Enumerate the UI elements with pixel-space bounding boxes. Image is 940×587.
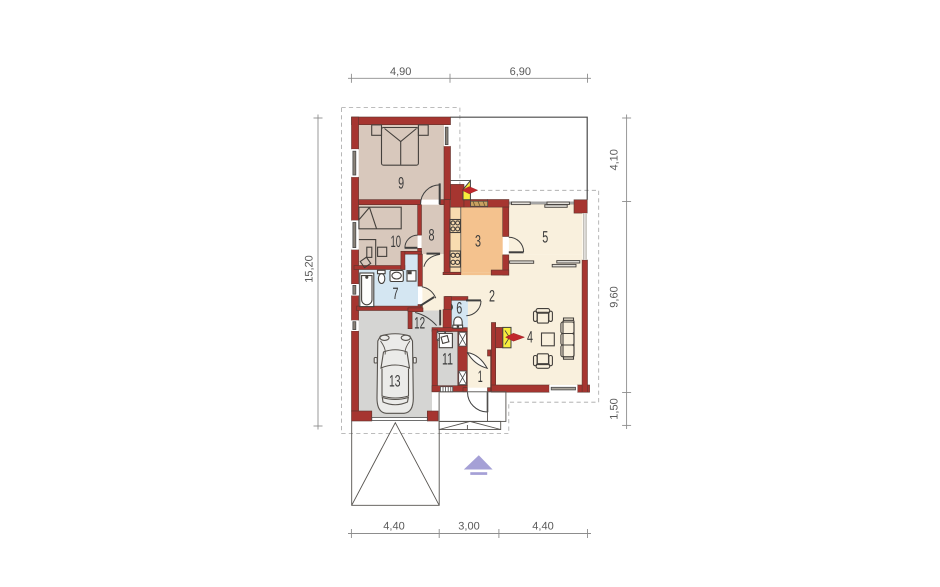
svg-text:11: 11 [442,350,453,368]
svg-text:12: 12 [414,315,425,333]
svg-text:10: 10 [391,233,402,251]
svg-text:3: 3 [475,233,481,251]
svg-text:4,10: 4,10 [609,149,621,170]
svg-text:4: 4 [527,328,533,346]
svg-text:6: 6 [456,300,462,318]
svg-text:13: 13 [389,373,401,391]
svg-text:15,20: 15,20 [304,255,316,283]
svg-text:9,60: 9,60 [609,286,621,307]
svg-text:4,40: 4,40 [383,521,404,533]
svg-text:8: 8 [429,227,435,245]
svg-text:4,40: 4,40 [532,521,553,533]
svg-text:3,00: 3,00 [458,521,479,533]
svg-text:7: 7 [393,285,399,303]
svg-text:6,90: 6,90 [510,66,531,78]
svg-text:5: 5 [542,228,548,246]
svg-text:2: 2 [489,288,495,306]
svg-text:9: 9 [398,174,404,192]
svg-text:1,50: 1,50 [609,398,621,419]
svg-text:4,90: 4,90 [390,66,411,78]
svg-text:1: 1 [478,368,483,386]
